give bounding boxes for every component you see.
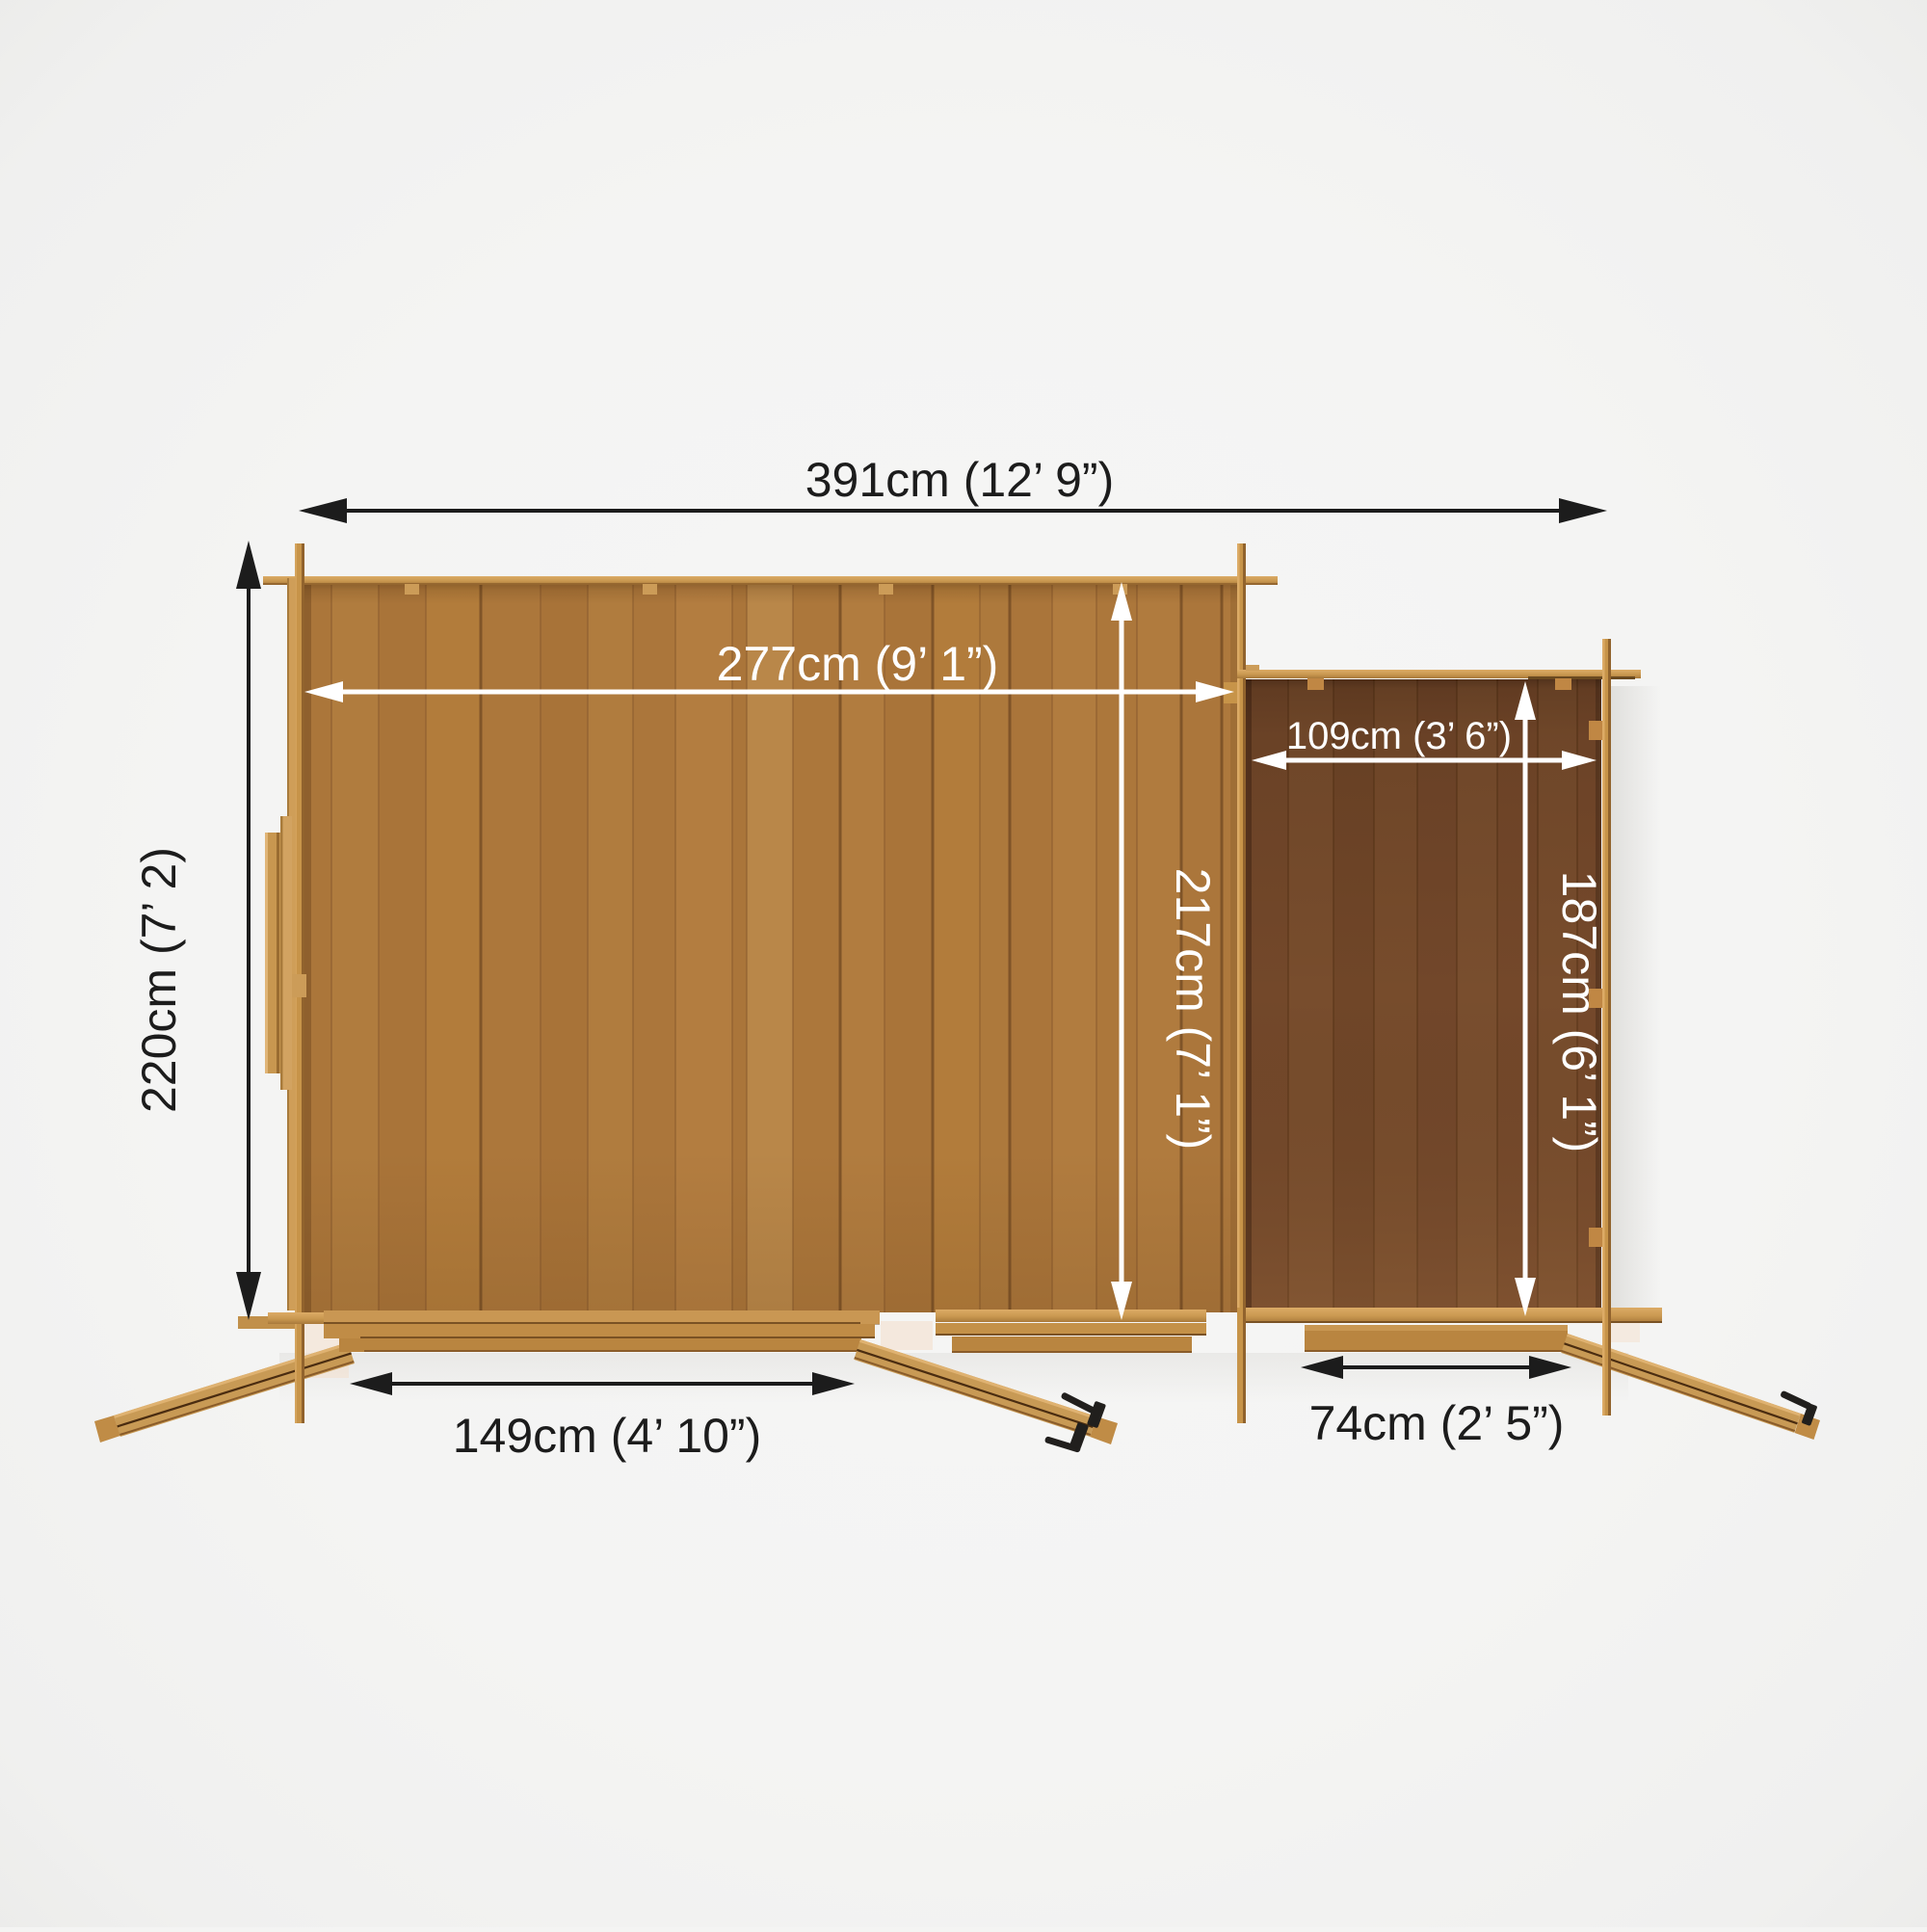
- svg-text:109cm (3’ 6”): 109cm (3’ 6”): [1286, 715, 1512, 757]
- svg-text:277cm (9’ 1”): 277cm (9’ 1”): [717, 637, 999, 691]
- svg-text:220cm (7’ 2): 220cm (7’ 2): [132, 847, 186, 1113]
- svg-text:149cm (4’ 10”): 149cm (4’ 10”): [453, 1409, 761, 1463]
- svg-text:74cm (2’ 5”): 74cm (2’ 5”): [1309, 1396, 1565, 1450]
- svg-text:217cm (7’ 1”): 217cm (7’ 1”): [1166, 868, 1220, 1151]
- svg-text:187cm (6’ 1”): 187cm (6’ 1”): [1552, 871, 1606, 1153]
- svg-text:391cm (12’ 9”): 391cm (12’ 9”): [805, 453, 1114, 507]
